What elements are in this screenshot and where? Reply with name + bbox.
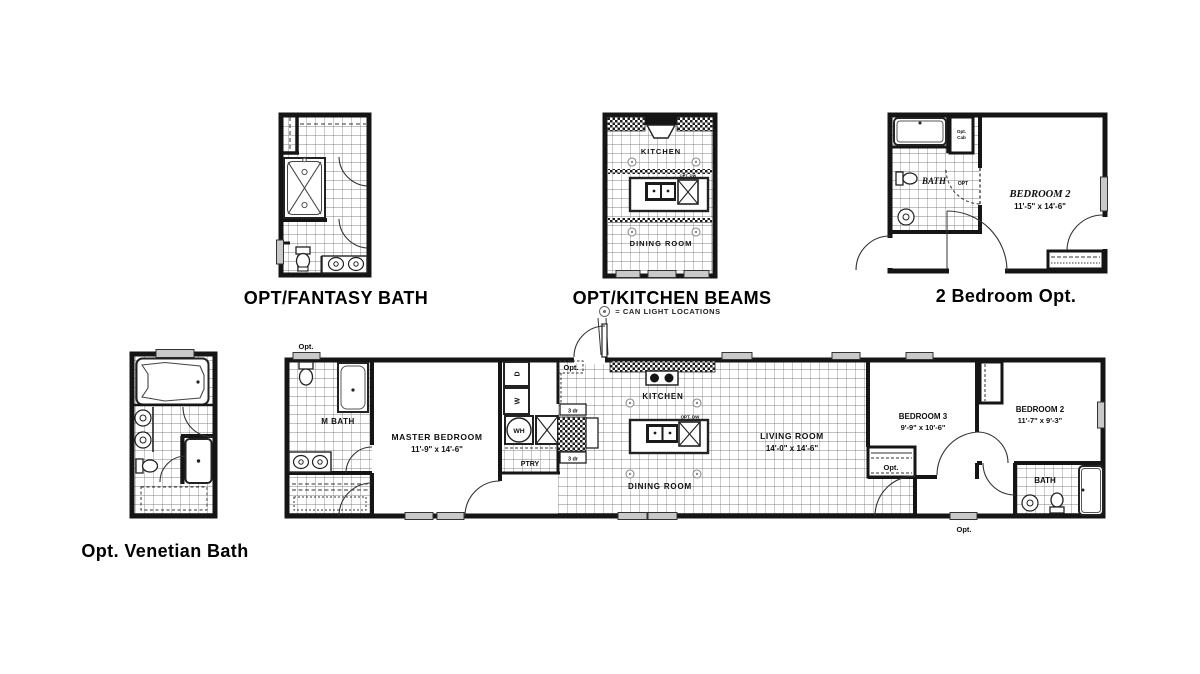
sink-icon — [349, 258, 364, 271]
label-opt-dw: OPT. DW — [680, 173, 697, 178]
dim-label-living: 14'-0" x 14'-6" — [766, 444, 819, 453]
closet-x — [536, 416, 558, 444]
can-light-legend: = CAN LIGHT LOCATIONS — [570, 306, 750, 317]
room-label-dining: DINING ROOM — [630, 239, 693, 248]
floorplan-drawing: KITCHEN OPT. DW DINING ROOM — [0, 0, 1200, 674]
dim-label-master-bedroom: 11'-9" x 14'-6" — [411, 445, 463, 454]
vanity-sinks — [322, 256, 367, 273]
label-3dr-lower: 3 dr — [568, 457, 579, 463]
sink-icon — [898, 209, 914, 225]
sink-icon — [135, 432, 151, 448]
window — [156, 350, 194, 358]
title-fantasy-bath: OPT/FANTASY BATH — [206, 288, 466, 309]
sink-icon — [135, 410, 151, 426]
toilet-icon — [896, 172, 917, 185]
room-label-living: LIVING ROOM — [760, 431, 824, 441]
plan-main: M BATH MASTER BEDROOM 11'-9" x 14'-6" D … — [287, 324, 1105, 534]
toilet-icon — [1050, 493, 1064, 513]
plan-two-bedroom: Opt. Cab BATH OPT BEDROOM 2 11'-5" x 14'… — [856, 115, 1108, 274]
toilet-icon — [136, 459, 158, 473]
label-opt-entry: Opt. — [564, 363, 579, 372]
label-opt-cab-2: Cab — [957, 135, 966, 140]
plan-fantasy-bath — [277, 115, 370, 275]
window — [277, 240, 284, 264]
room-label-pantry: PTRY — [521, 461, 540, 468]
room-label-dining: DINING ROOM — [628, 482, 692, 491]
can-light-icon — [693, 399, 701, 407]
toilet-icon — [296, 247, 310, 271]
room-label-master-bedroom: MASTER BEDROOM — [391, 432, 482, 442]
tub-icon — [894, 118, 946, 145]
beam — [608, 169, 712, 174]
windows — [616, 271, 709, 278]
sink-icon — [329, 258, 344, 271]
bedroom3-closet: Opt. — [868, 447, 915, 477]
shower-icon — [284, 158, 325, 218]
room-label-bedroom2: BEDROOM 2 — [1016, 405, 1065, 414]
beam — [608, 218, 712, 223]
room-label-bath: BATH — [921, 176, 947, 186]
vanity-sinks — [289, 452, 331, 472]
label-washer: W — [515, 397, 522, 404]
plan-kitchen-beams: KITCHEN OPT. DW DINING ROOM — [598, 115, 715, 355]
window — [1101, 177, 1108, 211]
can-light-icon — [628, 228, 636, 236]
sink-icon — [313, 456, 328, 469]
room-label-bedroom2: BEDROOM 2 — [1009, 189, 1072, 200]
toilet-icon — [299, 362, 313, 385]
can-light-icon — [626, 470, 634, 478]
room-label-bath2: BATH — [1034, 476, 1056, 485]
opt-cabinet: Opt. Cab — [950, 117, 973, 153]
refrigerator-icon — [586, 418, 598, 448]
tub-icon — [1079, 466, 1103, 515]
room-label-m-bath: M BATH — [321, 417, 355, 426]
title-two-bedroom: 2 Bedroom Opt. — [876, 286, 1136, 307]
washer-icon: W — [504, 388, 529, 414]
label-opt-cab-1: Opt. — [957, 129, 966, 134]
can-light-icon — [692, 228, 700, 236]
title-venetian-bath: Opt. Venetian Bath — [35, 541, 295, 562]
water-heater-icon: WH — [505, 416, 533, 444]
label-opt-door: OPT — [958, 181, 968, 187]
label-opt-dw: OPT. DW — [681, 415, 701, 420]
legend-text: = CAN LIGHT LOCATIONS — [615, 307, 721, 316]
room-label-bedroom3: BEDROOM 3 — [899, 412, 948, 421]
closet-shelves — [1048, 251, 1103, 269]
dryer-icon: D — [504, 362, 529, 386]
kitchen-island: OPT. DW — [630, 415, 708, 454]
kitchen-island: OPT. DW — [630, 173, 708, 211]
dim-label-bedroom2: 11'-5" x 14'-6" — [1014, 202, 1066, 211]
label-opt-closet: Opt. — [884, 463, 899, 472]
shower-icon — [181, 436, 214, 484]
sink-icon — [294, 456, 309, 469]
label-opt-window-bottom: Opt. — [957, 525, 972, 534]
room-label-kitchen: KITCHEN — [642, 392, 683, 401]
shower-icon — [338, 363, 368, 412]
can-light-icon — [692, 158, 700, 166]
label-water-heater: WH — [513, 428, 524, 435]
can-light-icon — [599, 306, 610, 317]
dim-label-bedroom3: 9'-9" x 10'-6" — [901, 423, 946, 432]
can-light-icon — [693, 470, 701, 478]
label-dryer: D — [515, 371, 522, 376]
dim-label-bedroom2: 11'-7" x 9'-3" — [1018, 416, 1063, 425]
entry-door-opening — [574, 355, 605, 364]
sink-icon — [1022, 495, 1038, 511]
bedroom2-closet — [980, 362, 1002, 403]
room-label-kitchen: KITCHEN — [641, 147, 681, 156]
garden-tub-icon — [137, 359, 209, 405]
can-light-icon — [628, 158, 636, 166]
label-3dr-upper: 3 dr — [568, 409, 579, 415]
can-light-icon — [626, 399, 634, 407]
floorplan-sheet: KITCHEN OPT. DW DINING ROOM — [0, 0, 1200, 674]
label-opt-window-top: Opt. — [299, 342, 314, 351]
plan-venetian-bath — [132, 350, 215, 517]
